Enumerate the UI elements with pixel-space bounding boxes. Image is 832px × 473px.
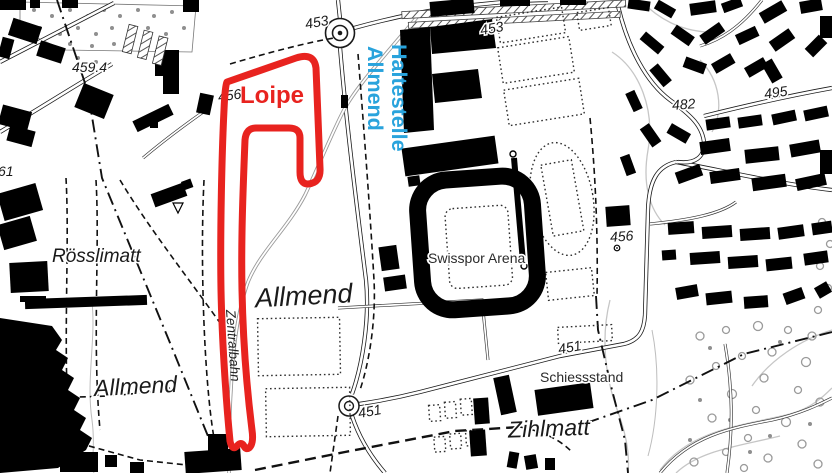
elevation-456-east: 456 [609,227,634,245]
elevation-451-center: 451 [357,401,383,421]
loipe-label: Loipe [240,82,304,109]
loipe-route [221,56,320,448]
loipe-annotation: Loipe [221,56,320,448]
label-swisspor-arena: Swisspor Arena [428,250,525,266]
stop-annotation: Haltestelle Allmend [363,44,411,152]
elevation-495: 495 [763,83,789,102]
stop-label-line2: Allmend [363,46,387,131]
elevation-461-edge: 61 [0,163,14,179]
elevation-459-4: 459.4 [72,59,107,75]
label-allmend-center: Allmend [252,278,354,313]
elevation-453-ne: 453 [479,18,505,38]
label-zihlmatt: Zihlmatt [507,414,592,443]
topo-map-canvas: 459.4 456 453 453 482 495 456 451 451 61… [0,0,832,473]
elevation-482: 482 [671,95,696,113]
elevation-456-west: 456 [217,85,243,104]
buildings [0,0,832,473]
roundabout [326,19,355,48]
stop-label-line1: Haltestelle [387,44,411,152]
label-roesslimatt: Rösslimatt [52,246,141,267]
label-allmend-sw: Allmend [91,371,179,401]
map: 459.4 456 453 453 482 495 456 451 451 61… [0,0,832,473]
label-schiessstand: Schiessstand [540,369,623,385]
